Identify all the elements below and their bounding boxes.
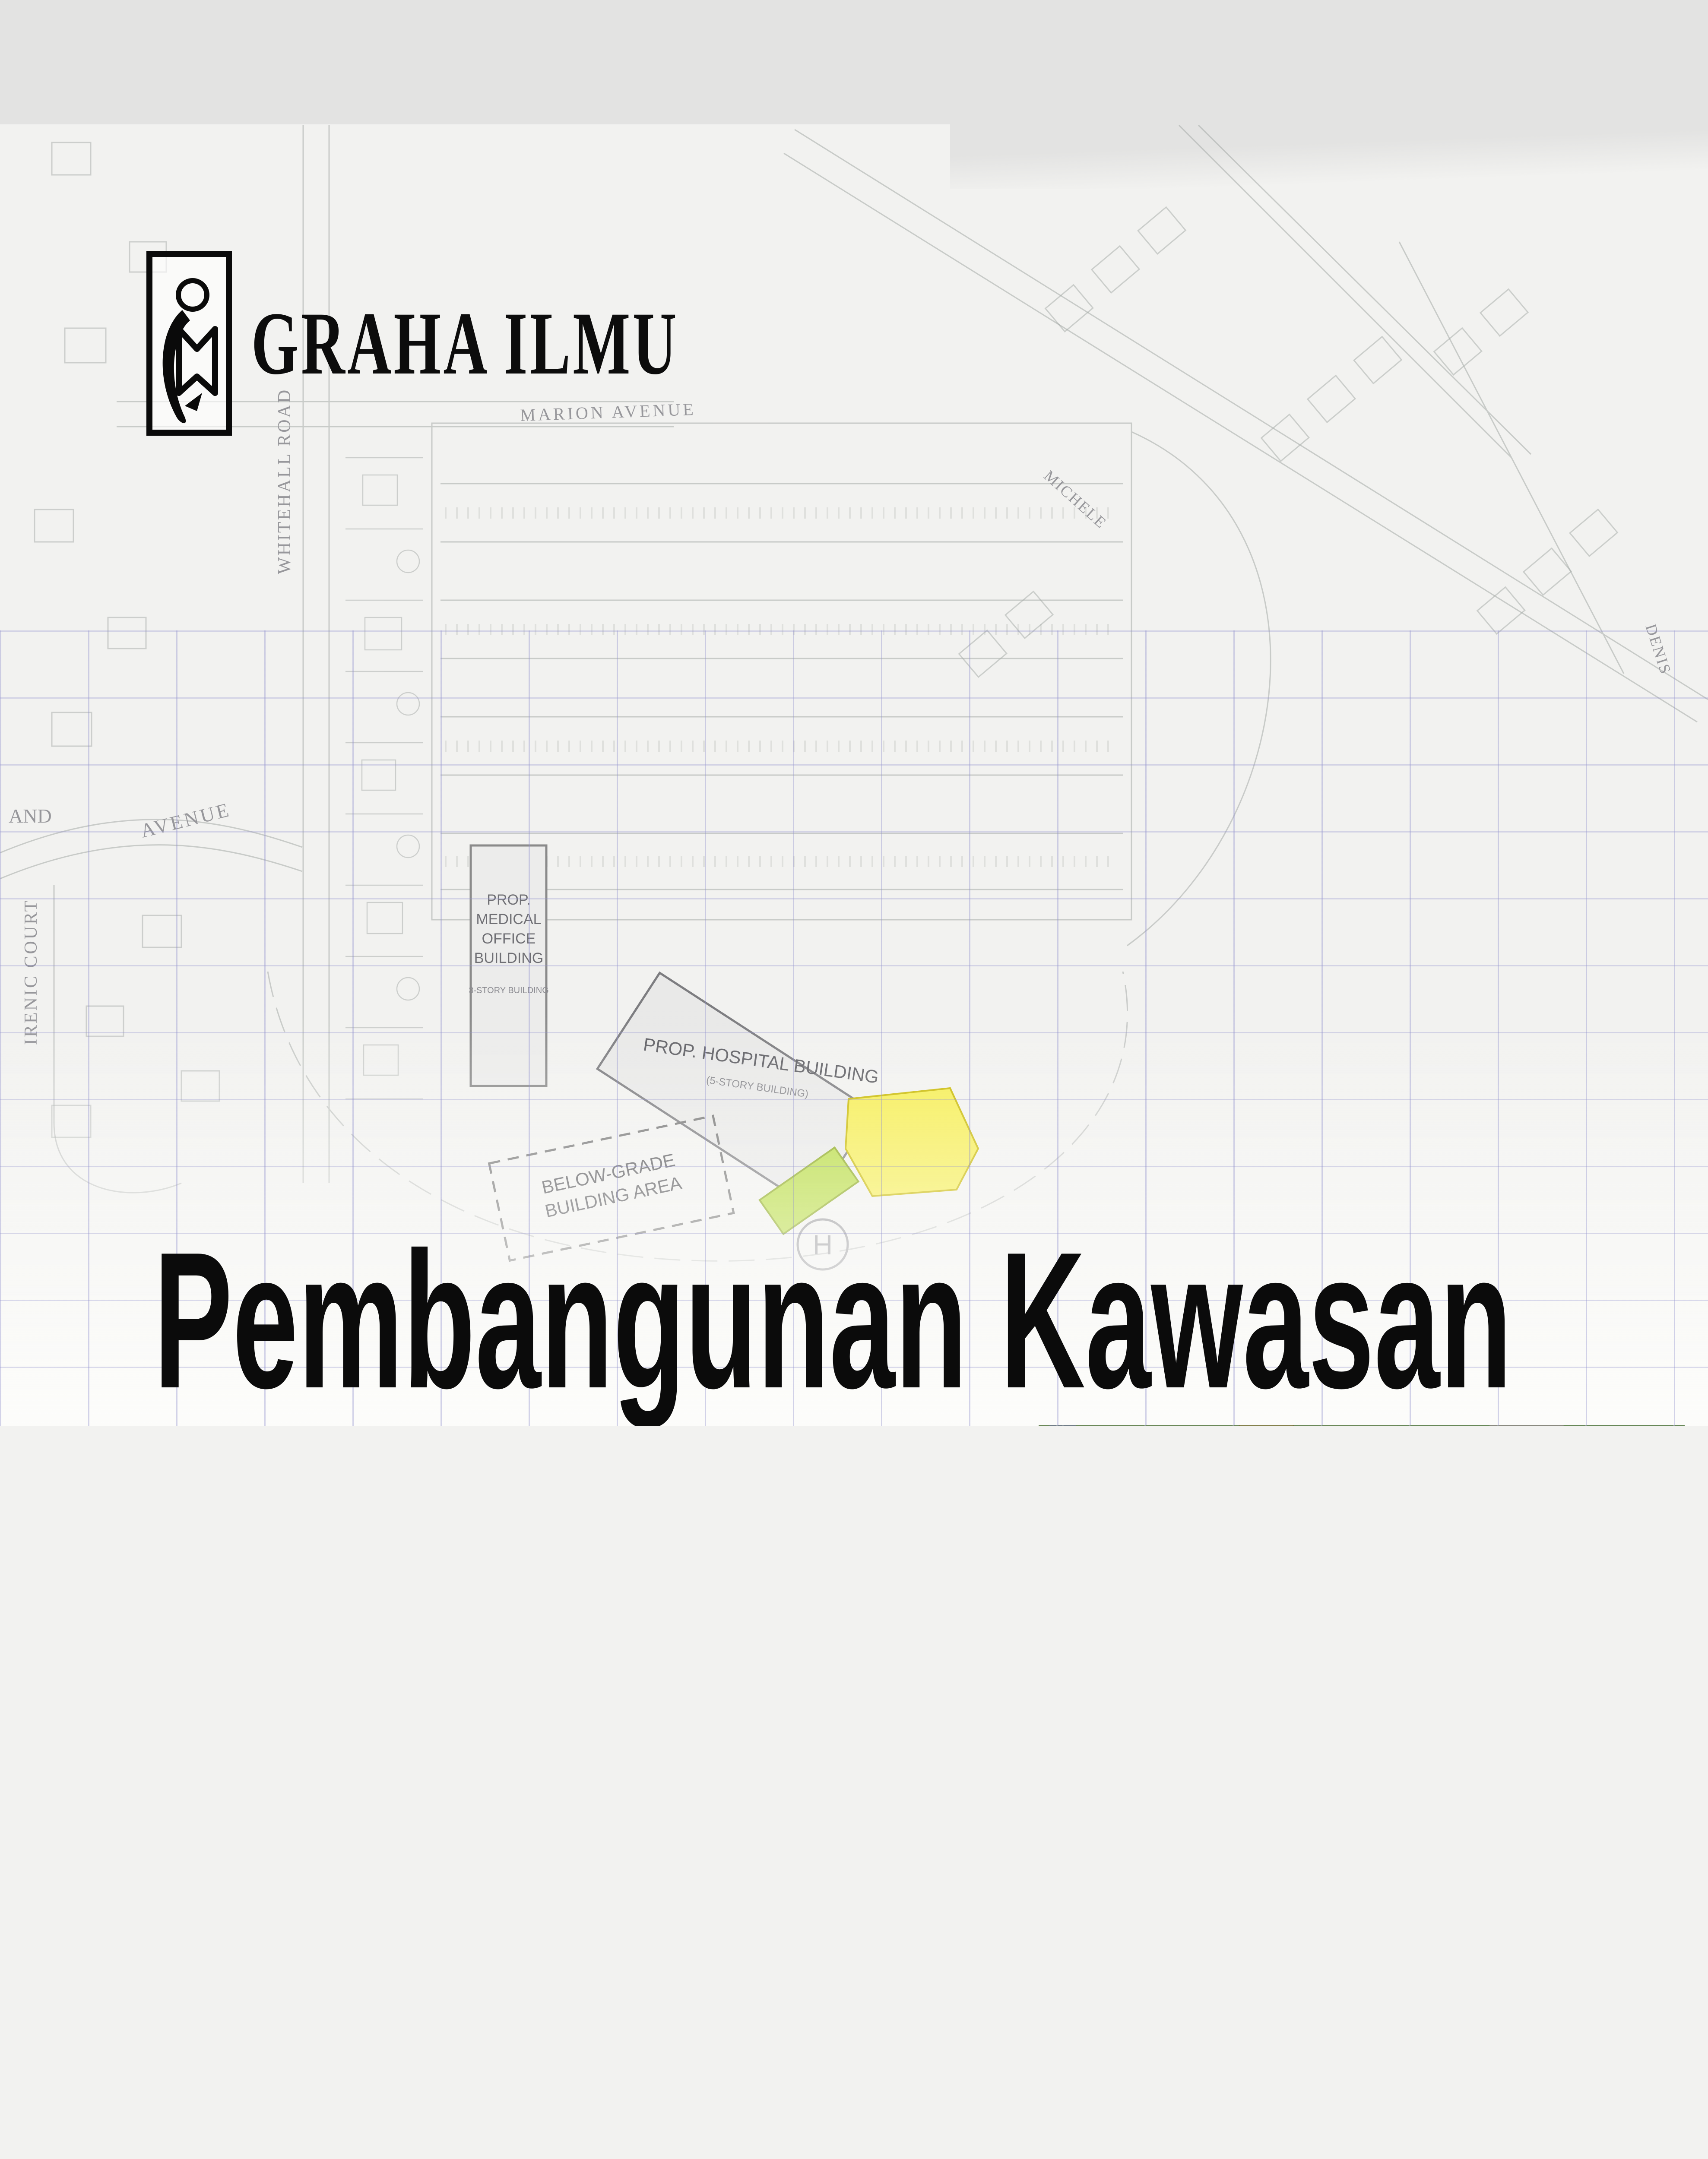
- title-line1: Pembangunan Kawasan: [154, 1212, 1512, 1430]
- yellow-site-patch: [846, 1088, 978, 1196]
- street-label-denis: DENIS: [1642, 622, 1674, 677]
- red-grid-block: [0, 1809, 264, 1943]
- thumbnail-bw-siteplan: [264, 1809, 530, 1943]
- title-block: Pembangunan Kawasan dan Tata Ruang: [0, 1209, 1708, 1684]
- medical-office-label-line1: PROP.: [487, 892, 530, 908]
- medical-office-label-line2: MEDICAL: [476, 911, 541, 928]
- legend-orange-square: [1035, 1893, 1090, 1948]
- publisher-name: GRAHA ILMU: [251, 294, 679, 393]
- street-label-michele: MICHELE: [1041, 467, 1110, 532]
- street-label-and: AND: [9, 805, 52, 827]
- medical-office-label-line3: OFFICE: [482, 931, 536, 947]
- medical-office-label-line4: BUILDING: [474, 950, 544, 966]
- book-cover: PROP. MEDICAL OFFICE BUILDING 3-STORY BU…: [0, 0, 1708, 2159]
- street-label-avenue: AVENUE: [138, 798, 233, 842]
- tan-divider-line: [0, 1806, 821, 1808]
- street-label-irenic-court: IRENIC COURT: [21, 899, 41, 1045]
- title-line2-main: Tata Ruang: [410, 1440, 1008, 1657]
- medical-office-sublabel: 3-STORY BUILDING: [469, 986, 549, 995]
- street-label-whitehall-road: WHITEHALL ROAD: [275, 388, 295, 574]
- title-line2-dan: dan: [162, 1451, 376, 1656]
- author-name: Rahardjo Adisasmita: [243, 2124, 818, 2159]
- publisher-logo: [146, 250, 232, 436]
- publisher-name-lockup: GRAHA ILMU: [242, 276, 717, 406]
